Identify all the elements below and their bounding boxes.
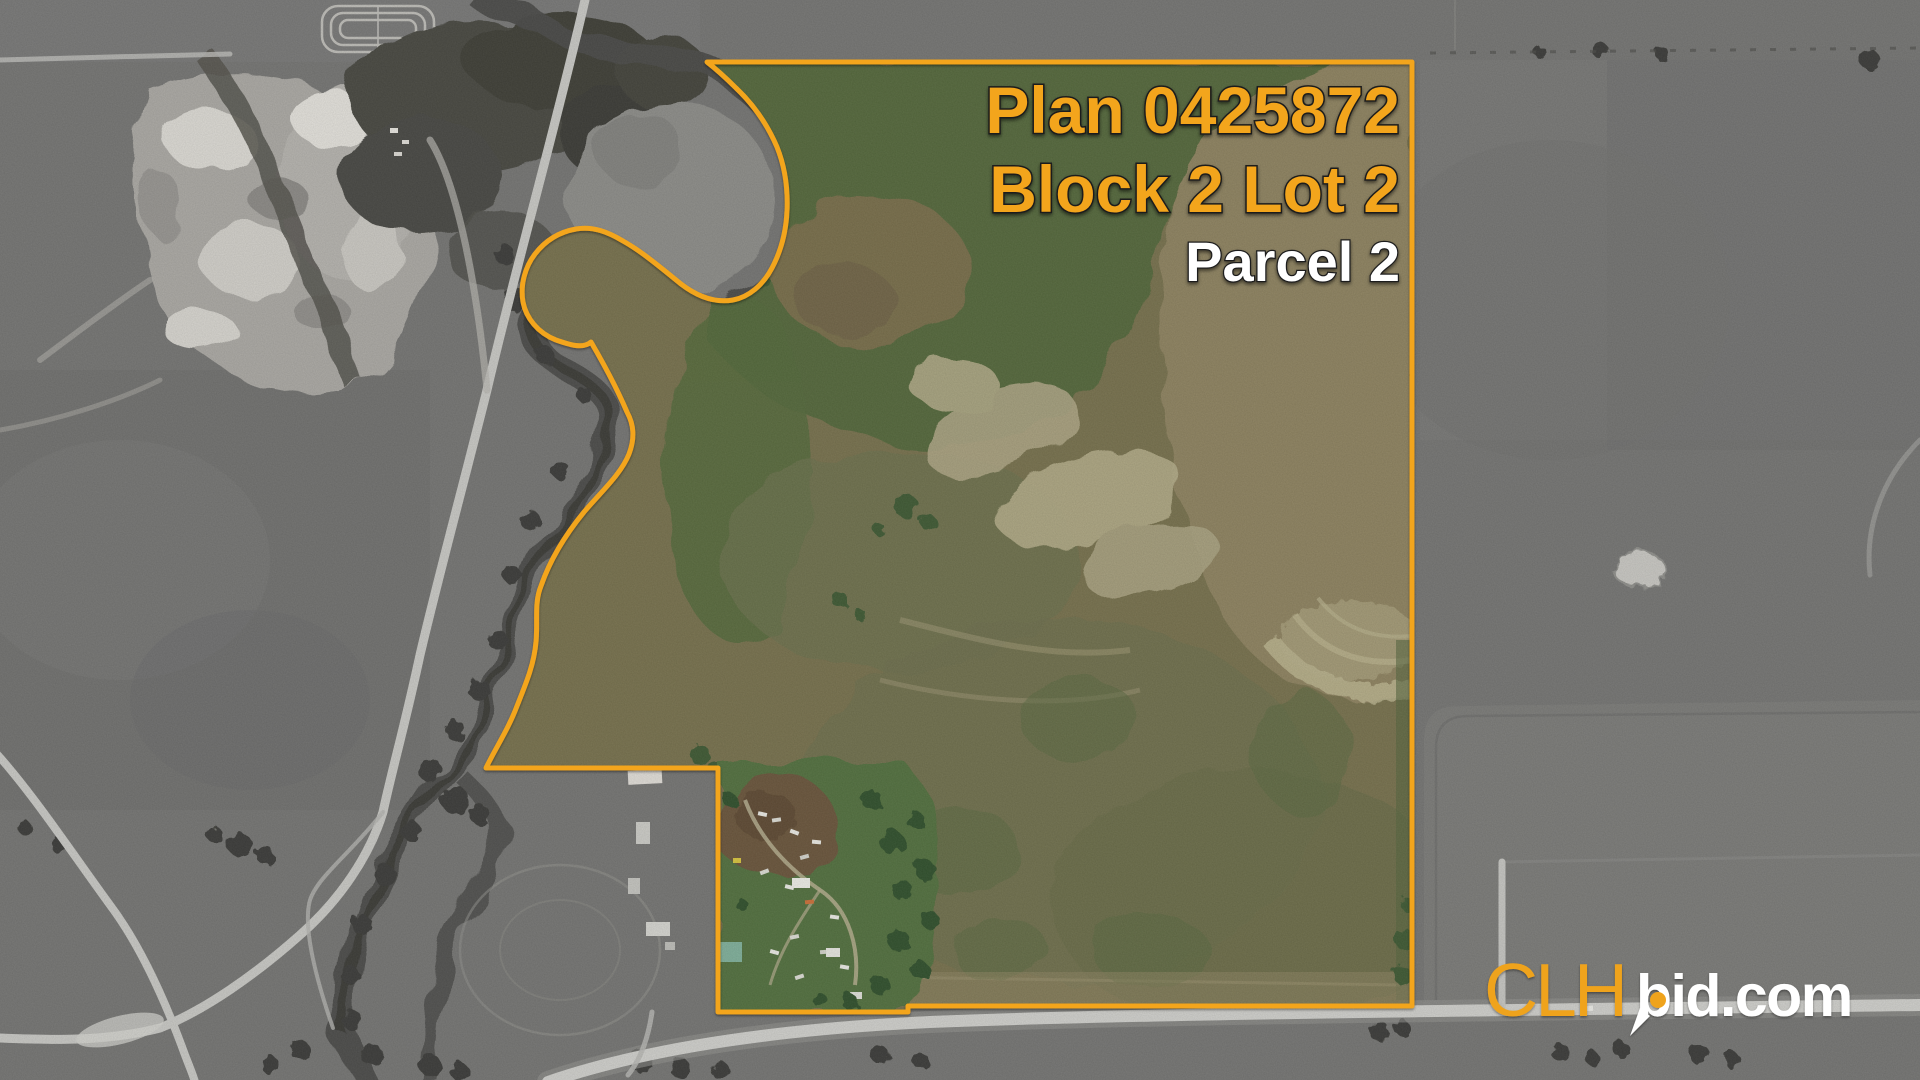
logo-clh-text: CLH bbox=[1484, 948, 1625, 1032]
parcel-label: Parcel 2 bbox=[1185, 230, 1400, 293]
map-screenshot: Plan 0425872 Block 2 Lot 2 Parcel 2 CLH … bbox=[0, 0, 1920, 1080]
block-lot-label: Block 2 Lot 2 bbox=[989, 152, 1400, 226]
grain-light-layer bbox=[0, 0, 1920, 1080]
logo-bid-text: bid.com bbox=[1636, 963, 1852, 1029]
logo-pin-dot-icon bbox=[1650, 992, 1666, 1008]
satellite-map: Plan 0425872 Block 2 Lot 2 Parcel 2 CLH … bbox=[0, 0, 1920, 1080]
plan-number-label: Plan 0425872 bbox=[985, 73, 1400, 147]
